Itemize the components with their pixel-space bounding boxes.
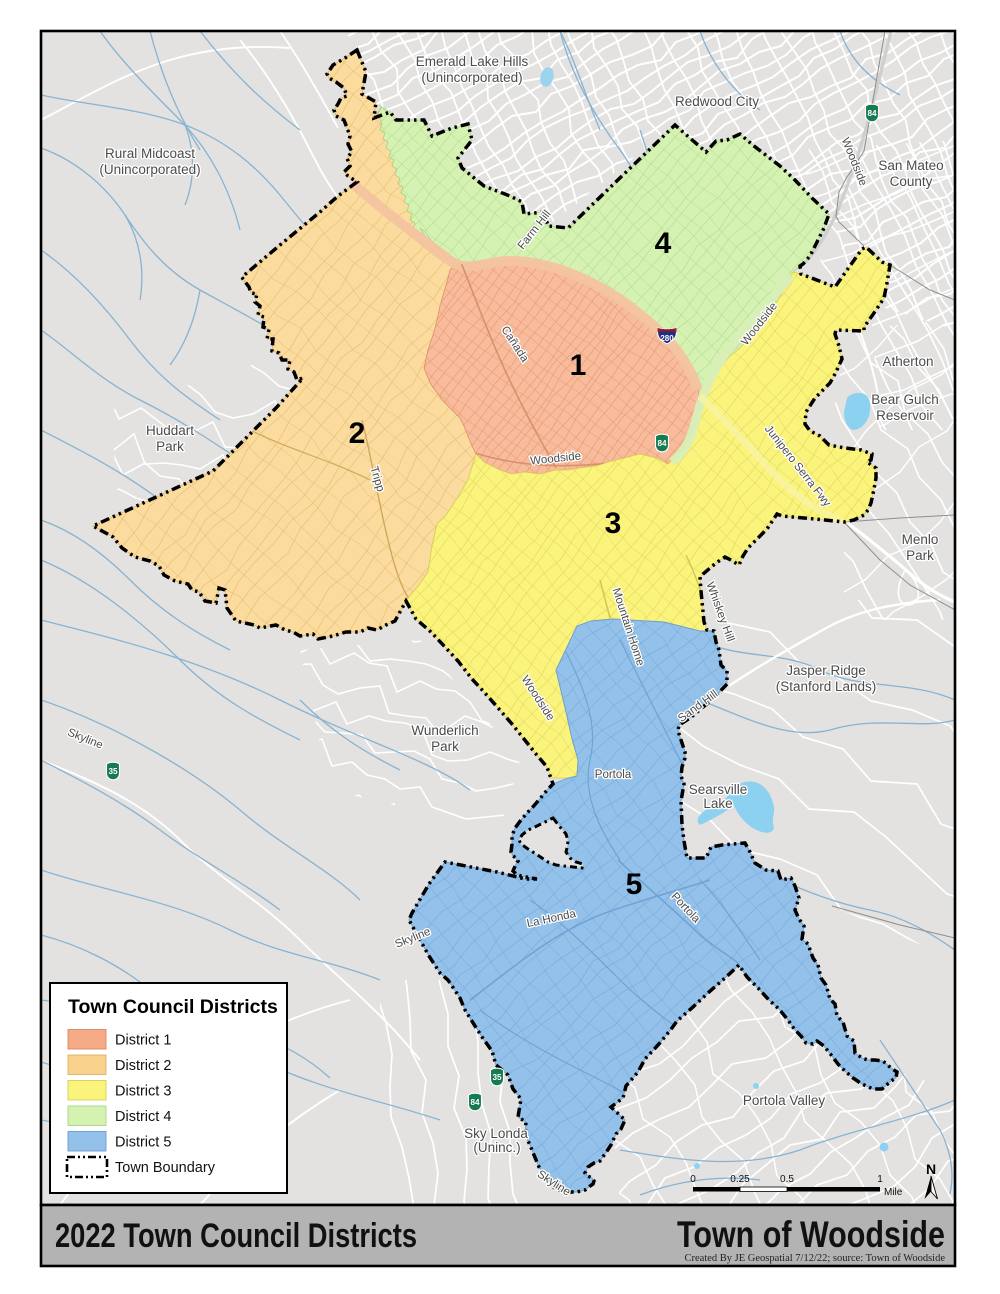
- svg-text:4: 4: [655, 227, 672, 260]
- svg-text:1: 1: [570, 349, 587, 382]
- svg-text:Town Boundary: Town Boundary: [115, 1160, 216, 1176]
- svg-text:35: 35: [492, 1073, 502, 1082]
- svg-text:2022 Town Council Districts: 2022 Town Council Districts: [55, 1217, 417, 1255]
- svg-text:Town of Woodside: Town of Woodside: [677, 1214, 945, 1255]
- svg-text:Bear Gulch: Bear Gulch: [871, 392, 939, 407]
- svg-text:5: 5: [626, 868, 643, 901]
- svg-text:Rural Midcoast: Rural Midcoast: [105, 146, 195, 161]
- svg-text:(Stanford Lands): (Stanford Lands): [776, 679, 877, 694]
- svg-text:84: 84: [867, 109, 877, 118]
- svg-text:2: 2: [349, 417, 366, 450]
- svg-text:Sky Londa: Sky Londa: [464, 1126, 528, 1141]
- svg-text:84: 84: [470, 1098, 480, 1107]
- svg-text:Portola: Portola: [595, 769, 632, 781]
- svg-text:(Uninc.): (Uninc.): [473, 1140, 520, 1155]
- svg-text:San Mateo: San Mateo: [878, 158, 943, 173]
- svg-text:District 1: District 1: [115, 1033, 171, 1049]
- svg-text:Emerald Lake Hills: Emerald Lake Hills: [416, 54, 529, 69]
- svg-text:0.5: 0.5: [780, 1174, 794, 1185]
- svg-text:Lake: Lake: [703, 796, 732, 811]
- svg-text:Created By JE Geospatial 7/12/: Created By JE Geospatial 7/12/22; source…: [685, 1253, 946, 1264]
- svg-text:District 3: District 3: [115, 1084, 171, 1100]
- svg-text:Menlo: Menlo: [902, 532, 939, 547]
- svg-text:Jasper Ridge: Jasper Ridge: [786, 663, 866, 678]
- svg-text:District 2: District 2: [115, 1058, 171, 1074]
- svg-text:84: 84: [657, 439, 667, 448]
- svg-text:35: 35: [108, 767, 118, 776]
- svg-text:0.25: 0.25: [730, 1174, 750, 1185]
- svg-text:Mile: Mile: [884, 1187, 903, 1198]
- svg-text:Town Council Districts: Town Council Districts: [68, 996, 278, 1018]
- svg-text:Park: Park: [431, 739, 459, 754]
- svg-text:0: 0: [690, 1174, 696, 1185]
- svg-text:(Unincorporated): (Unincorporated): [99, 162, 200, 177]
- svg-text:District 4: District 4: [115, 1109, 171, 1125]
- svg-text:County: County: [890, 174, 933, 189]
- svg-text:Park: Park: [156, 439, 184, 454]
- svg-text:Atherton: Atherton: [882, 354, 933, 369]
- svg-text:District 5: District 5: [115, 1135, 171, 1151]
- svg-text:Portola Valley: Portola Valley: [743, 1093, 826, 1108]
- svg-text:3: 3: [605, 507, 622, 540]
- svg-text:Reservoir: Reservoir: [876, 408, 934, 423]
- svg-text:N: N: [926, 1161, 936, 1177]
- svg-text:Wunderlich: Wunderlich: [411, 723, 478, 738]
- svg-text:280: 280: [660, 334, 674, 343]
- svg-text:Park: Park: [906, 548, 934, 563]
- svg-text:Searsville: Searsville: [689, 782, 748, 797]
- svg-text:1: 1: [877, 1174, 883, 1185]
- svg-text:(Unincorporated): (Unincorporated): [421, 70, 522, 85]
- svg-text:Redwood City: Redwood City: [675, 94, 759, 109]
- svg-text:Huddart: Huddart: [146, 423, 194, 438]
